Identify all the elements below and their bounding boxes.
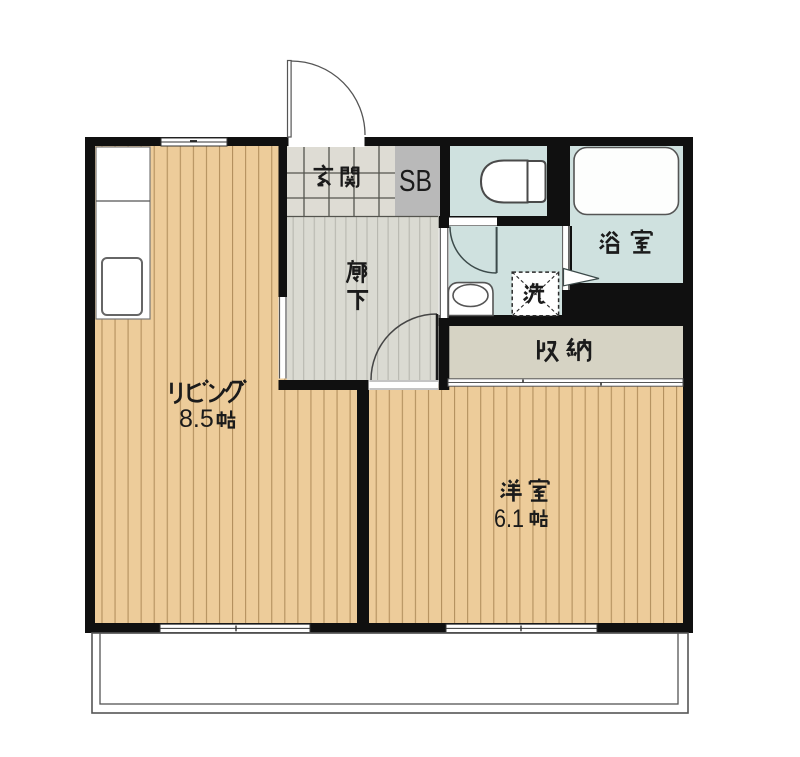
svg-text:6.1: 6.1	[494, 505, 524, 533]
svg-text:8.5: 8.5	[179, 405, 214, 433]
svg-text:SB: SB	[399, 163, 432, 198]
